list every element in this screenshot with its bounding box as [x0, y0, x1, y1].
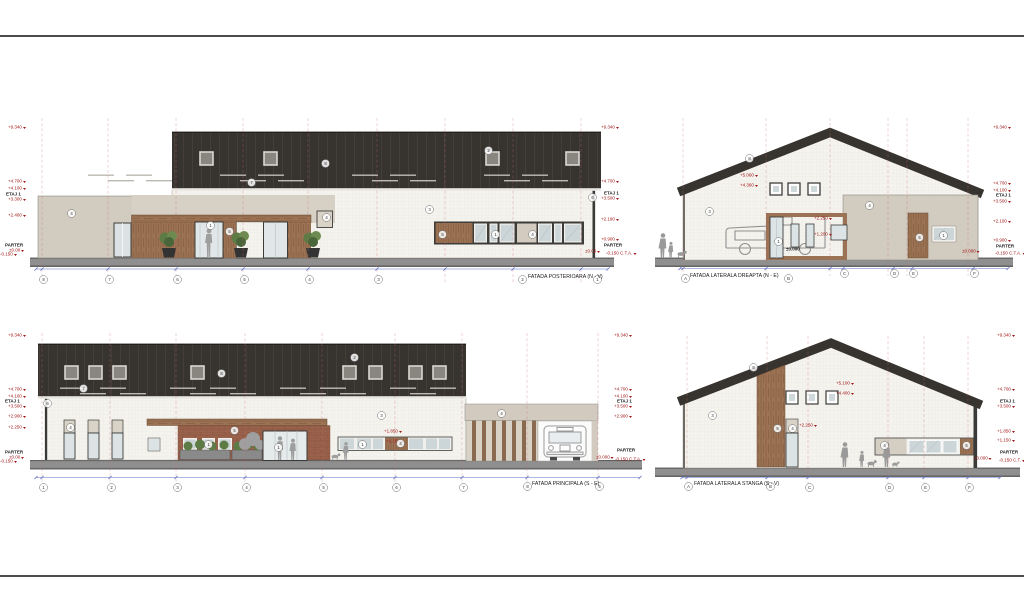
people-silhouettes — [659, 233, 687, 258]
grid-bubble: A — [684, 482, 693, 491]
grid-bubble: 3 — [173, 483, 182, 492]
elevation-caption: FATADA LATERALA STANGA (S - V) — [694, 481, 779, 487]
level-marker: -0.150 — [0, 459, 17, 464]
grid-bubble: 5 — [595, 482, 604, 491]
level-marker: +9.340 — [8, 125, 26, 130]
sheet-top-rule — [0, 35, 1024, 37]
grid-bubble: 7 — [459, 483, 468, 492]
grid-bubble: 1 — [39, 483, 48, 492]
grid-bubble: C — [805, 483, 814, 492]
grid-bubble: B — [766, 482, 775, 491]
level-marker: +2.400 — [8, 213, 26, 218]
grid-bubble: D — [885, 483, 894, 492]
elevation-caption: FATADA PRINCIPALA (S - E) — [532, 481, 599, 487]
grid-bubble: 5 — [319, 483, 328, 492]
bus-silhouette — [544, 426, 586, 461]
level-marker: PARTER — [5, 243, 23, 248]
grid-bubble: 6 — [392, 483, 401, 492]
grid-bubble: E — [921, 483, 930, 492]
elevation-principala-drawing — [30, 330, 650, 480]
level-marker: +3.300 — [8, 197, 26, 202]
elevation-laterala-stanga-drawing — [655, 330, 1024, 480]
level-marker: ETAJ 1 — [5, 399, 20, 404]
drawing-sheet: +9.340+4.700+4.100ETAJ 1+3.300+2.400PART… — [0, 0, 1024, 613]
level-marker: PARTER — [5, 450, 23, 455]
annotation-layer — [0, 0, 1024, 613]
level-marker: +4.700 — [8, 179, 26, 184]
level-marker: +2.250 — [8, 425, 26, 430]
grid-bubble: F — [965, 483, 974, 492]
level-markers-layer: +9.340+4.700+4.100ETAJ 1+3.300+2.400PART… — [0, 0, 1024, 613]
grid-bubble: 8 — [523, 482, 532, 491]
elevation-posterioara-drawing — [30, 110, 630, 290]
level-marker: ±0.00 — [9, 248, 24, 253]
elevation-laterala-dreapta-drawing — [655, 110, 1024, 280]
grid-bubble: 4 — [242, 483, 251, 492]
level-marker: -0.150 — [0, 252, 17, 257]
level-marker: +9.340 — [8, 333, 26, 338]
sheet-bottom-rule — [0, 575, 1024, 577]
level-marker: +4.700 — [8, 387, 26, 392]
level-marker: ETAJ 1 — [6, 192, 21, 197]
level-marker: +2.900 — [8, 414, 26, 419]
level-marker: +3.500 — [8, 404, 26, 409]
captions-layer: FATADA POSTERIOARA (N - V)FATADA LATERAL… — [0, 0, 1024, 613]
level-marker: ±0.00 — [9, 455, 24, 460]
level-marker: +4.100 — [8, 186, 26, 191]
grid-bubbles-layer: 87654321438725151446CDEFAB83415112345678… — [0, 0, 1024, 613]
level-marker: +4.100 — [8, 394, 26, 399]
grid-bubble: 2 — [107, 483, 116, 492]
